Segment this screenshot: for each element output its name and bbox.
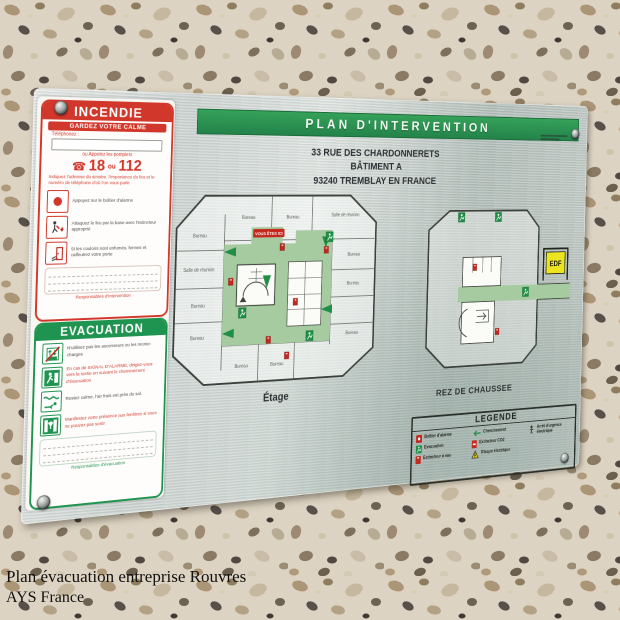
legend-item-extincteur-eau: Extincteur à eau bbox=[415, 451, 469, 464]
address-line-3: 93240 TREMBLAY EN FRANCE bbox=[225, 174, 512, 189]
exit-icon bbox=[458, 213, 465, 223]
exit-icon bbox=[522, 287, 528, 297]
room-label: Bureau bbox=[286, 215, 299, 221]
incendie-step-1: Appuyez sur le boîtier d'alarme bbox=[46, 191, 163, 214]
incendie-footer: Responsables d'intervention bbox=[37, 293, 167, 302]
edf-label: EDF bbox=[549, 259, 562, 268]
extinguisher-icon bbox=[228, 278, 233, 285]
plate-title: PLAN D'INTERVENTION bbox=[305, 116, 491, 135]
room-label: Bureau bbox=[234, 363, 248, 370]
floor-plan-rdc: EDF REZ DE CHAUSSEE bbox=[402, 203, 586, 401]
door-icon bbox=[45, 242, 67, 265]
exit-icon bbox=[326, 232, 333, 242]
legend-label-arret-urgence: Arrêt d'urgence électrique bbox=[537, 421, 572, 435]
incendie-panel: INCENDIE GARDEZ VOTRE CALME Téléphonez :… bbox=[35, 99, 174, 322]
emergency-numbers: ☎ 18 ou 112 bbox=[41, 158, 171, 175]
exit-icon bbox=[495, 212, 502, 221]
arrow-left-icon bbox=[472, 430, 481, 438]
extinguisher-icon bbox=[495, 328, 499, 335]
room-label: Salle de réunion bbox=[183, 267, 214, 274]
address-line-2: BÂTIMENT A bbox=[226, 159, 513, 175]
extinguisher-icon bbox=[266, 336, 271, 343]
alarm-box-icon bbox=[416, 435, 422, 443]
number-18: 18 bbox=[88, 159, 105, 175]
site-address: 33 RUE DES CHARDONNERETS BÂTIMENT A 9324… bbox=[225, 145, 513, 189]
no-elevator-icon bbox=[42, 343, 64, 365]
incendie-write-in-lines bbox=[44, 265, 161, 295]
extinguisher-icon bbox=[324, 246, 329, 253]
incendie-step-2: Attaquez le feu par la base avec l'extin… bbox=[46, 215, 163, 239]
phone-number-field bbox=[51, 138, 162, 151]
legend-label-risque-electrique: Risque électrique bbox=[481, 447, 510, 455]
floor-plan-etage: VOUS ÊTES ICI Bureau Bureau Salle de réu… bbox=[164, 190, 384, 412]
rdc-plan-drawing: EDF bbox=[402, 203, 585, 384]
exit-icon bbox=[416, 445, 422, 453]
photo-caption: Plan évacuation entreprise Rouvres AYS F… bbox=[6, 566, 246, 609]
exit-man-icon bbox=[41, 367, 63, 389]
crawl-icon bbox=[41, 390, 63, 412]
incendie-step-2-text: Attaquez le feu par la base avec l'extin… bbox=[71, 221, 162, 234]
incendie-step-3: Si les couloirs sont enfumés, fermez et … bbox=[45, 240, 162, 265]
evacuation-step-1-text: N'utilisez pas les ascenseurs ou les mon… bbox=[67, 342, 160, 359]
evacuation-step-2-text: En cas de SIGNAL D'ALARME, dirigez-vous … bbox=[66, 362, 159, 386]
extinguisher-user-icon bbox=[46, 216, 68, 239]
extinguisher-icon bbox=[284, 352, 289, 359]
electric-hazard-icon bbox=[472, 450, 479, 458]
room-label: Bureau bbox=[347, 281, 360, 287]
incendie-step-1-text: Appuyez sur le boîtier d'alarme bbox=[72, 199, 133, 205]
incendie-step-3-text: Si les couloirs sont enfumés, fermez et … bbox=[71, 245, 162, 259]
alarm-button-icon bbox=[46, 191, 68, 214]
room-label: Bureau bbox=[190, 336, 204, 343]
legend-label-cheminement: Cheminement bbox=[483, 427, 506, 434]
plate-title-banner: PLAN D'INTERVENTION bbox=[197, 109, 579, 142]
or-label: ou bbox=[108, 163, 116, 170]
legend-item-arret-urgence: Arrêt d'urgence électrique bbox=[528, 421, 571, 443]
number-112: 112 bbox=[118, 159, 142, 175]
legend-label-extincteur-eau: Extincteur à eau bbox=[423, 453, 451, 461]
room-label: Bureau bbox=[193, 233, 207, 239]
evacuation-step-4-text: Manifestez votre présence aux fenêtres s… bbox=[65, 411, 158, 430]
intervention-plan-plate: PLAN D'INTERVENTION 33 RUE DES CHARDONNE… bbox=[21, 88, 588, 525]
window-icon bbox=[40, 414, 62, 437]
plate-metal-surface: PLAN D'INTERVENTION 33 RUE DES CHARDONNE… bbox=[21, 88, 588, 525]
legend-label-evacuation: Evacuation bbox=[424, 443, 444, 450]
exit-icon bbox=[238, 308, 246, 319]
revision-marking bbox=[541, 133, 568, 142]
room-label: Salle de réunion bbox=[331, 212, 359, 218]
evacuation-step-1: N'utilisez pas les ascenseurs ou les mon… bbox=[42, 338, 159, 365]
caption-line-1: Plan évacuation entreprise Rouvres bbox=[6, 566, 246, 588]
extinguisher-eau-icon bbox=[415, 456, 420, 464]
exit-icon bbox=[306, 330, 313, 340]
evacuation-step-3-text: Restez calme, l'air frais est près du so… bbox=[65, 392, 142, 403]
instruction-sticker: INCENDIE GARDEZ VOTRE CALME Téléphonez :… bbox=[25, 96, 175, 511]
legend-label-extincteur-co2: Extincteur CO2 bbox=[479, 438, 504, 446]
extinguisher-icon bbox=[280, 243, 285, 250]
emergency-stop-icon bbox=[528, 425, 534, 434]
legend-item-risque-electrique: Risque électrique bbox=[472, 446, 526, 459]
rdc-label: REZ DE CHAUSSEE bbox=[402, 380, 544, 401]
legend-label-alarm: Boîtier d'alarme bbox=[424, 432, 452, 440]
phone-icon: ☎ bbox=[72, 160, 86, 172]
room-label: Bureau bbox=[191, 304, 205, 310]
etage-plan-drawing: VOUS ÊTES ICI Bureau Bureau Salle de réu… bbox=[165, 190, 385, 393]
incendie-notice: Indiquez l'adresse du sinistre, l'import… bbox=[48, 175, 163, 188]
evacuation-panel: EVACUATION N'utilisez pas les ascenseurs… bbox=[29, 317, 168, 510]
room-label: Bureau bbox=[242, 215, 256, 221]
extinguisher-co2-icon bbox=[472, 440, 477, 448]
extinguisher-icon bbox=[473, 264, 477, 271]
room-label: Bureau bbox=[347, 252, 360, 258]
room-label: Bureau bbox=[270, 361, 284, 367]
caption-line-2: AYS France bbox=[6, 588, 246, 609]
room-label: Bureau bbox=[345, 330, 358, 336]
extinguisher-icon bbox=[293, 298, 298, 305]
